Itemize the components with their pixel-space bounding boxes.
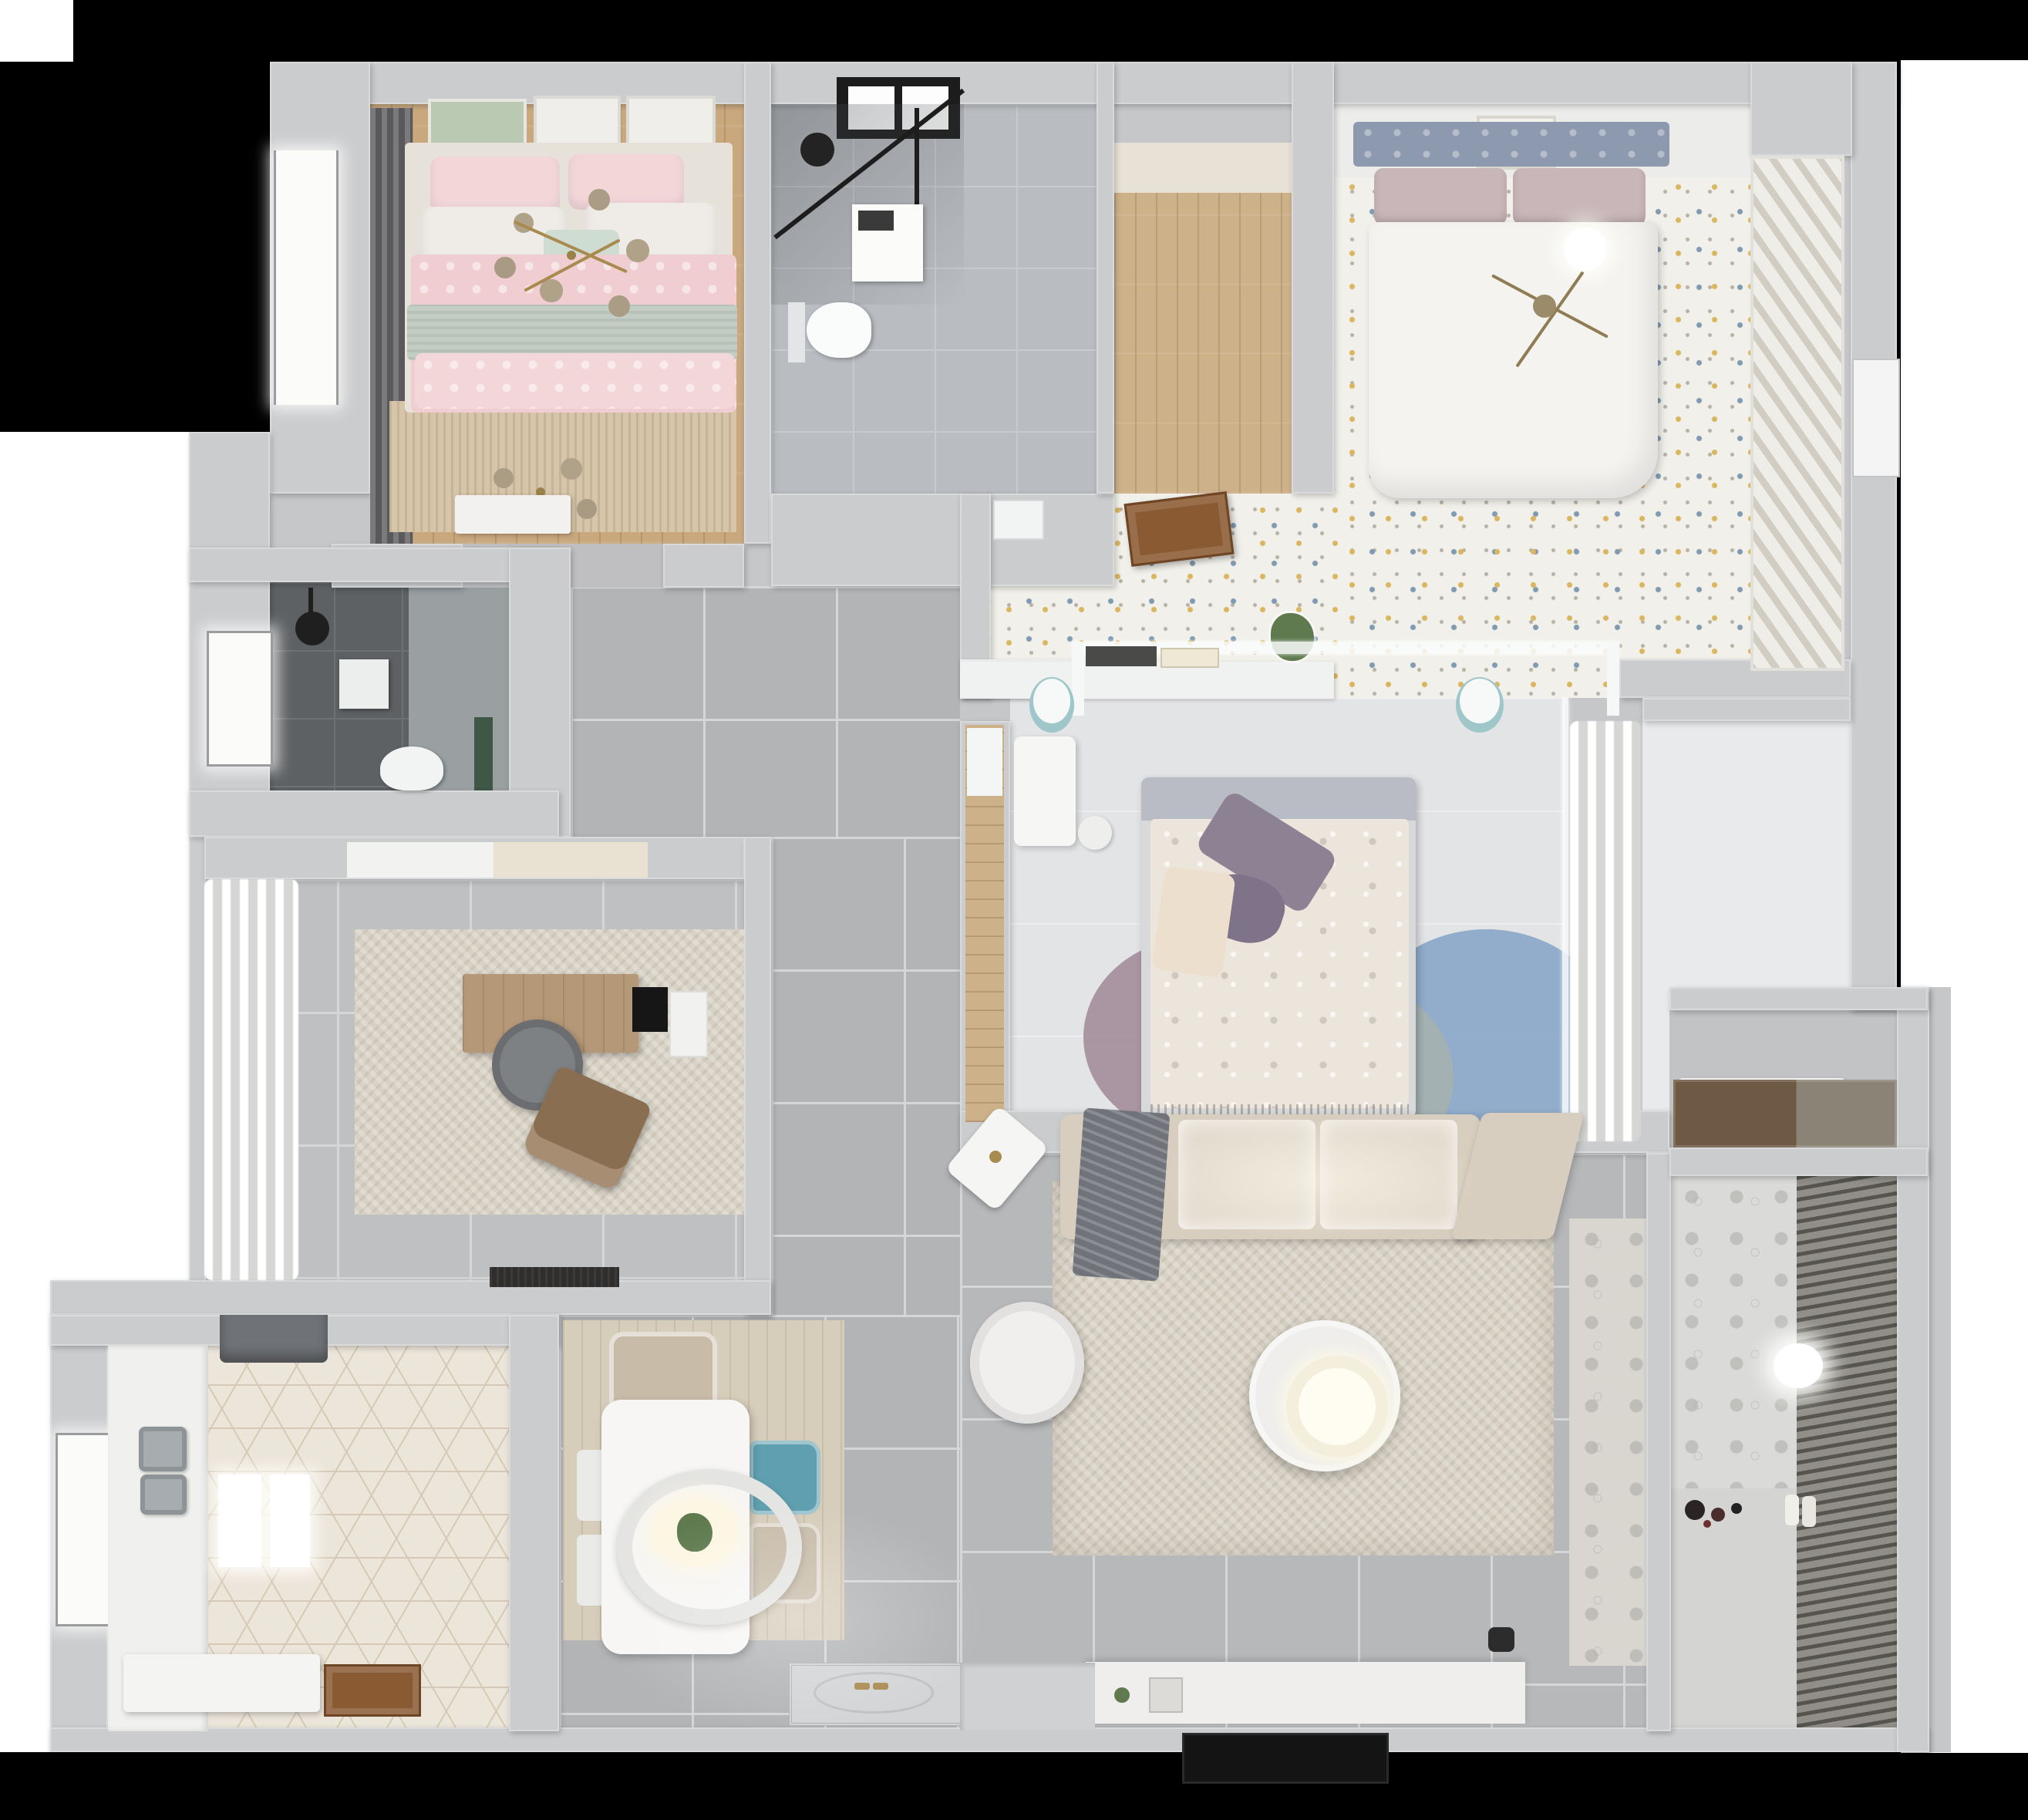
wall-outer-right-top bbox=[1851, 62, 1897, 1010]
wall-bathroom-dark-top bbox=[189, 548, 559, 582]
niche-white-object bbox=[967, 728, 1002, 796]
branch-chandelier-icon bbox=[567, 251, 576, 260]
pendant-ball-lamp bbox=[1564, 228, 1607, 271]
shower-head-icon bbox=[800, 133, 834, 167]
balcony-paper-rolls bbox=[1785, 1495, 1799, 1525]
slatted-wardrobe bbox=[1750, 156, 1844, 671]
wall-living-right bbox=[1646, 1153, 1671, 1731]
toilet-tank-main bbox=[788, 302, 805, 362]
center-desk-stool bbox=[1078, 816, 1112, 850]
kitchen-entry-wood-mat bbox=[324, 1664, 421, 1717]
balcony-venetian-blinds bbox=[1797, 1176, 1901, 1727]
art-frame-green bbox=[428, 99, 527, 147]
living-patterned-passage bbox=[1569, 1218, 1646, 1666]
art-frame-white2 bbox=[626, 96, 716, 148]
study-side-cabinet bbox=[669, 991, 708, 1057]
dark-toilet bbox=[380, 747, 443, 790]
coffee-table-inner-ring bbox=[1286, 1356, 1388, 1458]
sofa-gray-throw bbox=[1073, 1107, 1171, 1281]
dark-shower-head bbox=[295, 612, 329, 645]
art-frame-white1 bbox=[534, 96, 621, 148]
bedroom-pink-window bbox=[274, 150, 339, 405]
bed-pink-pillow-left bbox=[430, 157, 560, 214]
bed-foot-bench bbox=[455, 495, 571, 534]
wall-hallway-right-top bbox=[1642, 698, 1851, 721]
center-white-desk bbox=[1014, 736, 1076, 846]
master-headboard bbox=[1353, 122, 1669, 167]
wall-outer-right-bottom bbox=[1897, 987, 1929, 1752]
bathroom-dark-window bbox=[207, 631, 273, 767]
master-duvet bbox=[1369, 222, 1658, 498]
partition-books-light bbox=[1161, 648, 1219, 668]
console-decor-frames bbox=[1149, 1677, 1183, 1713]
dining-chair-top bbox=[609, 1332, 717, 1409]
bed-pink-fold bbox=[415, 353, 735, 409]
console-decor-plant bbox=[1114, 1687, 1130, 1703]
kitchen-window bbox=[56, 1433, 113, 1626]
console-decor-cups bbox=[1488, 1627, 1514, 1652]
center-pillow-cream bbox=[1151, 865, 1236, 978]
wall-outer-left-study bbox=[189, 837, 206, 1311]
center-curtains-right bbox=[1570, 721, 1641, 1141]
toilet-bowl-main bbox=[807, 302, 871, 358]
apartment-floor-plan bbox=[0, 0, 2028, 1820]
light-bloom-hall bbox=[601, 1504, 987, 1735]
kitchen-sink-top bbox=[139, 1427, 187, 1471]
center-bed-headboard bbox=[1141, 777, 1416, 821]
kitchen-lit-cabinet-1 bbox=[218, 1475, 261, 1567]
ceiling-fan-hub bbox=[1533, 295, 1556, 318]
study-curtain-wall bbox=[204, 879, 298, 1280]
vanity-decor-lines bbox=[858, 211, 894, 231]
wall-niche-top bbox=[1669, 987, 1928, 1010]
wall-bedroompink-bottom-right bbox=[663, 544, 744, 588]
study-top-ledge-cream bbox=[494, 842, 648, 878]
bed-pink-pillow-right bbox=[568, 154, 684, 210]
dark-wall-shelf bbox=[339, 659, 389, 709]
master-pillow-right bbox=[1513, 168, 1646, 225]
study-door-mat bbox=[490, 1267, 619, 1287]
outside-patch-bottom-left bbox=[0, 1311, 54, 1752]
wall-study-bottom bbox=[50, 1280, 771, 1315]
master-pillow-left bbox=[1374, 168, 1507, 225]
light-bloom-living bbox=[1157, 1118, 1481, 1242]
teal-table-right-top bbox=[1460, 679, 1500, 723]
teal-table-left-top bbox=[1033, 679, 1070, 723]
bed-sage-band bbox=[407, 305, 737, 360]
ac-vent bbox=[993, 500, 1044, 540]
side-table-decor-gold bbox=[989, 1151, 1002, 1163]
wall-kitchen-right bbox=[509, 1315, 559, 1731]
tv-panel bbox=[1184, 1735, 1386, 1781]
wall-bathroom-main-bottom bbox=[771, 494, 1114, 586]
study-monitor bbox=[632, 987, 668, 1032]
kitchen-range-hood bbox=[220, 1315, 328, 1363]
balcony-toys bbox=[1685, 1500, 1705, 1520]
closet-room-ceiling-band bbox=[1114, 143, 1292, 193]
master-open-door bbox=[1124, 491, 1235, 567]
balcony-patterned-wall bbox=[1669, 1176, 1797, 1488]
wall-bedroompink-bathroom bbox=[744, 62, 771, 544]
kitchen-sink-bottom bbox=[140, 1475, 187, 1515]
dark-shower-arm bbox=[308, 588, 313, 615]
kitchen-island-slab bbox=[123, 1654, 320, 1712]
wall-closet-bedroom-master bbox=[1292, 62, 1334, 494]
wall-top-right-block bbox=[1750, 62, 1852, 156]
hallway-floor-mid bbox=[771, 837, 960, 1315]
center-glass-wall bbox=[1562, 698, 1568, 1149]
wall-outer-top bbox=[270, 62, 1897, 104]
wall-bathroom-dark-bottom bbox=[189, 790, 559, 837]
study-top-ledge-white bbox=[347, 842, 494, 878]
hallway-floor-upper bbox=[571, 586, 960, 837]
wall-niche-bottom bbox=[1669, 1148, 1928, 1176]
bathroom-dark-green-accent bbox=[474, 717, 493, 790]
master-ledge bbox=[960, 662, 1334, 699]
kitchen-lit-cabinet-2 bbox=[270, 1475, 310, 1567]
outside-patch-left bbox=[0, 432, 193, 1315]
living-armchair bbox=[970, 1302, 1084, 1424]
niche-wood-counter bbox=[1673, 1080, 1897, 1148]
outside-patch-top-left bbox=[0, 0, 73, 62]
balcony-ball-lamp bbox=[1774, 1343, 1823, 1388]
wall-bathroom-main-right bbox=[1097, 62, 1114, 494]
wall-study-right bbox=[744, 837, 771, 1315]
closet-room-floor bbox=[1114, 193, 1292, 494]
right-wall-door bbox=[1852, 359, 1900, 477]
glass-partition-post-right bbox=[1607, 642, 1619, 716]
partition-books-dark bbox=[1086, 646, 1157, 666]
